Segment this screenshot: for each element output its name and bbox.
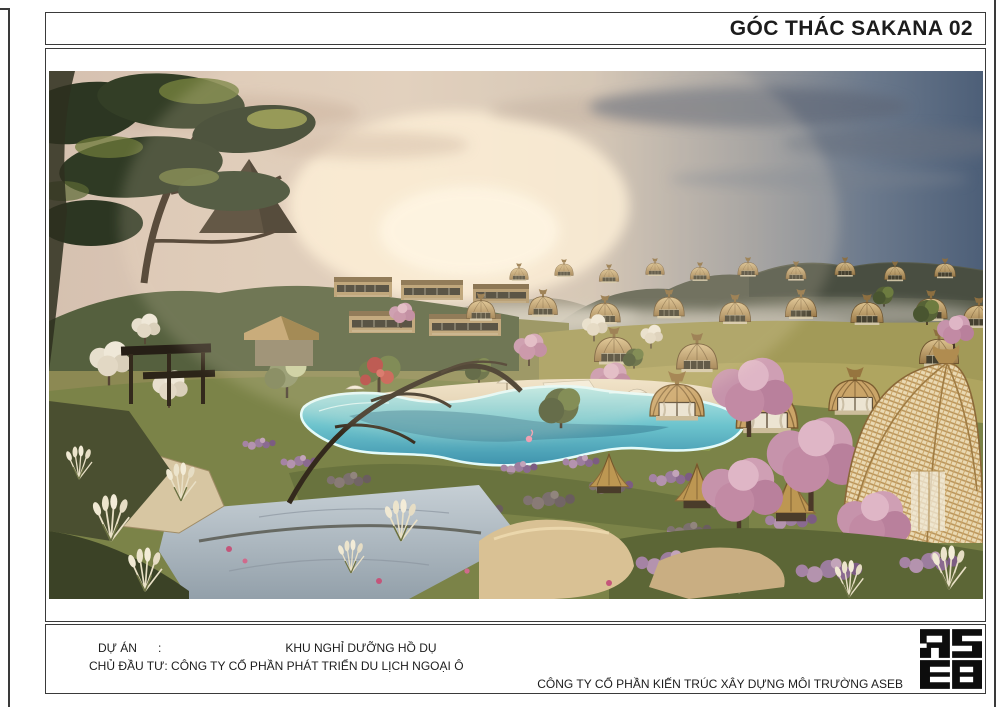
rendering-scene [49,71,983,599]
company-info: CÔNG TY CỔ PHẦN KIẾN TRÚC XÂY DỰNG MÔI T… [537,639,903,707]
project-label: DỰ ÁN [98,639,158,657]
project-name: KHU NGHỈ DƯỠNG HỒ DỤ [285,639,436,657]
resort-rendering [49,71,983,599]
right-margin-rule [994,0,996,707]
aseb-logo: ASEB [920,629,982,689]
left-margin-rule [8,8,10,707]
title-block-footer: DỰ ÁN:KHU NGHỈ DƯỠNG HỒ DỤ CHỦ ĐẦU TƯ: C… [45,624,986,694]
title-block: GÓC THÁC SAKANA 02 [45,12,986,45]
sheet-title: GÓC THÁC SAKANA 02 [730,17,985,41]
company-name: CÔNG TY CỔ PHẦN KIẾN TRÚC XÂY DỰNG MÔI T… [537,675,903,693]
project-info: DỰ ÁN:KHU NGHỈ DƯỠNG HỒ DỤ CHỦ ĐẦU TƯ: C… [89,639,464,675]
presentation-sheet: GÓC THÁC SAKANA 02 [0,0,1000,707]
investor-line: CHỦ ĐẦU TƯ: CÔNG TY CỔ PHẦN PHÁT TRIỂN D… [89,657,464,675]
aseb-logo-mark [920,629,982,689]
top-left-tick [0,8,9,10]
project-line: DỰ ÁN:KHU NGHỈ DƯỠNG HỒ DỤ [89,639,464,657]
